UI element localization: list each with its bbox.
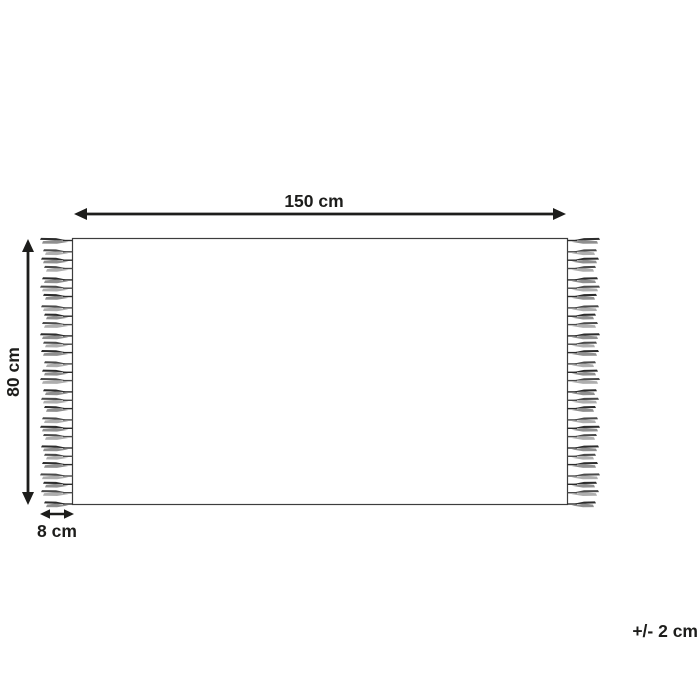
tassel [42,462,73,468]
arrowhead-left-icon [74,208,87,220]
tassel [44,266,73,272]
tassel [40,286,73,292]
arrowhead-right-icon [553,208,566,220]
tassel [44,406,73,412]
tassel [43,434,73,440]
tassel [567,406,596,412]
fringe-width-arrow [40,509,74,518]
diagram-svg: 150 cm 80 cm 8 cm +/- 2 cm [0,0,700,700]
tassel [42,370,73,376]
width-label: 150 cm [284,191,343,211]
tassel [41,258,73,264]
tassel [44,361,73,367]
tassel [41,350,73,356]
tassel [567,314,596,320]
tassel [42,277,73,283]
tolerance-label: +/- 2 cm [632,621,698,641]
tassel [567,426,600,432]
height-label: 80 cm [3,347,23,397]
tassel [567,462,598,468]
tassel [567,238,600,244]
tassel [567,445,599,451]
fringe-width-label: 8 cm [37,521,77,541]
arrowhead-right-icon [64,509,74,518]
tassel [567,286,600,292]
tassel [567,398,599,404]
tassel [44,314,73,320]
tassel [567,258,599,264]
tassel [42,417,73,423]
tassel [567,342,597,348]
tassel [567,473,600,479]
tassel [567,370,598,376]
tassel [44,454,73,460]
tassel [40,473,73,479]
tassel [43,482,73,488]
tassel [567,322,598,328]
tassel [41,305,73,311]
tassel [41,445,73,451]
tassel [567,361,596,367]
arrowhead-down-icon [22,492,34,505]
tassel [43,294,73,300]
tassel [567,454,596,460]
tassel [567,294,597,300]
left-fringe [40,238,73,507]
tassel [567,277,598,283]
arrowhead-up-icon [22,239,34,252]
tassel [567,417,598,423]
tassel [567,266,596,272]
tassel [567,333,600,339]
tassel [567,482,597,488]
tassel [40,238,73,244]
tassel [567,490,599,496]
tassel [40,333,73,339]
tassel [41,398,73,404]
tassel [42,322,73,328]
tassel [43,389,73,395]
tassel [40,378,73,384]
height-dimension-arrow [22,239,34,505]
tassel [567,378,600,384]
tassel [567,389,597,395]
arrowhead-left-icon [40,509,50,518]
tassel [567,305,599,311]
tassel [40,426,73,432]
tassel [567,350,599,356]
rug-dimension-diagram: 150 cm 80 cm 8 cm +/- 2 cm [0,0,700,700]
tassel [567,434,597,440]
tassel [43,342,73,348]
tassel [43,249,73,255]
tassel [41,490,73,496]
right-fringe [567,238,600,507]
tassel [567,249,597,255]
tassel [44,501,73,507]
tassel [567,501,596,507]
rug-outline [73,239,568,505]
